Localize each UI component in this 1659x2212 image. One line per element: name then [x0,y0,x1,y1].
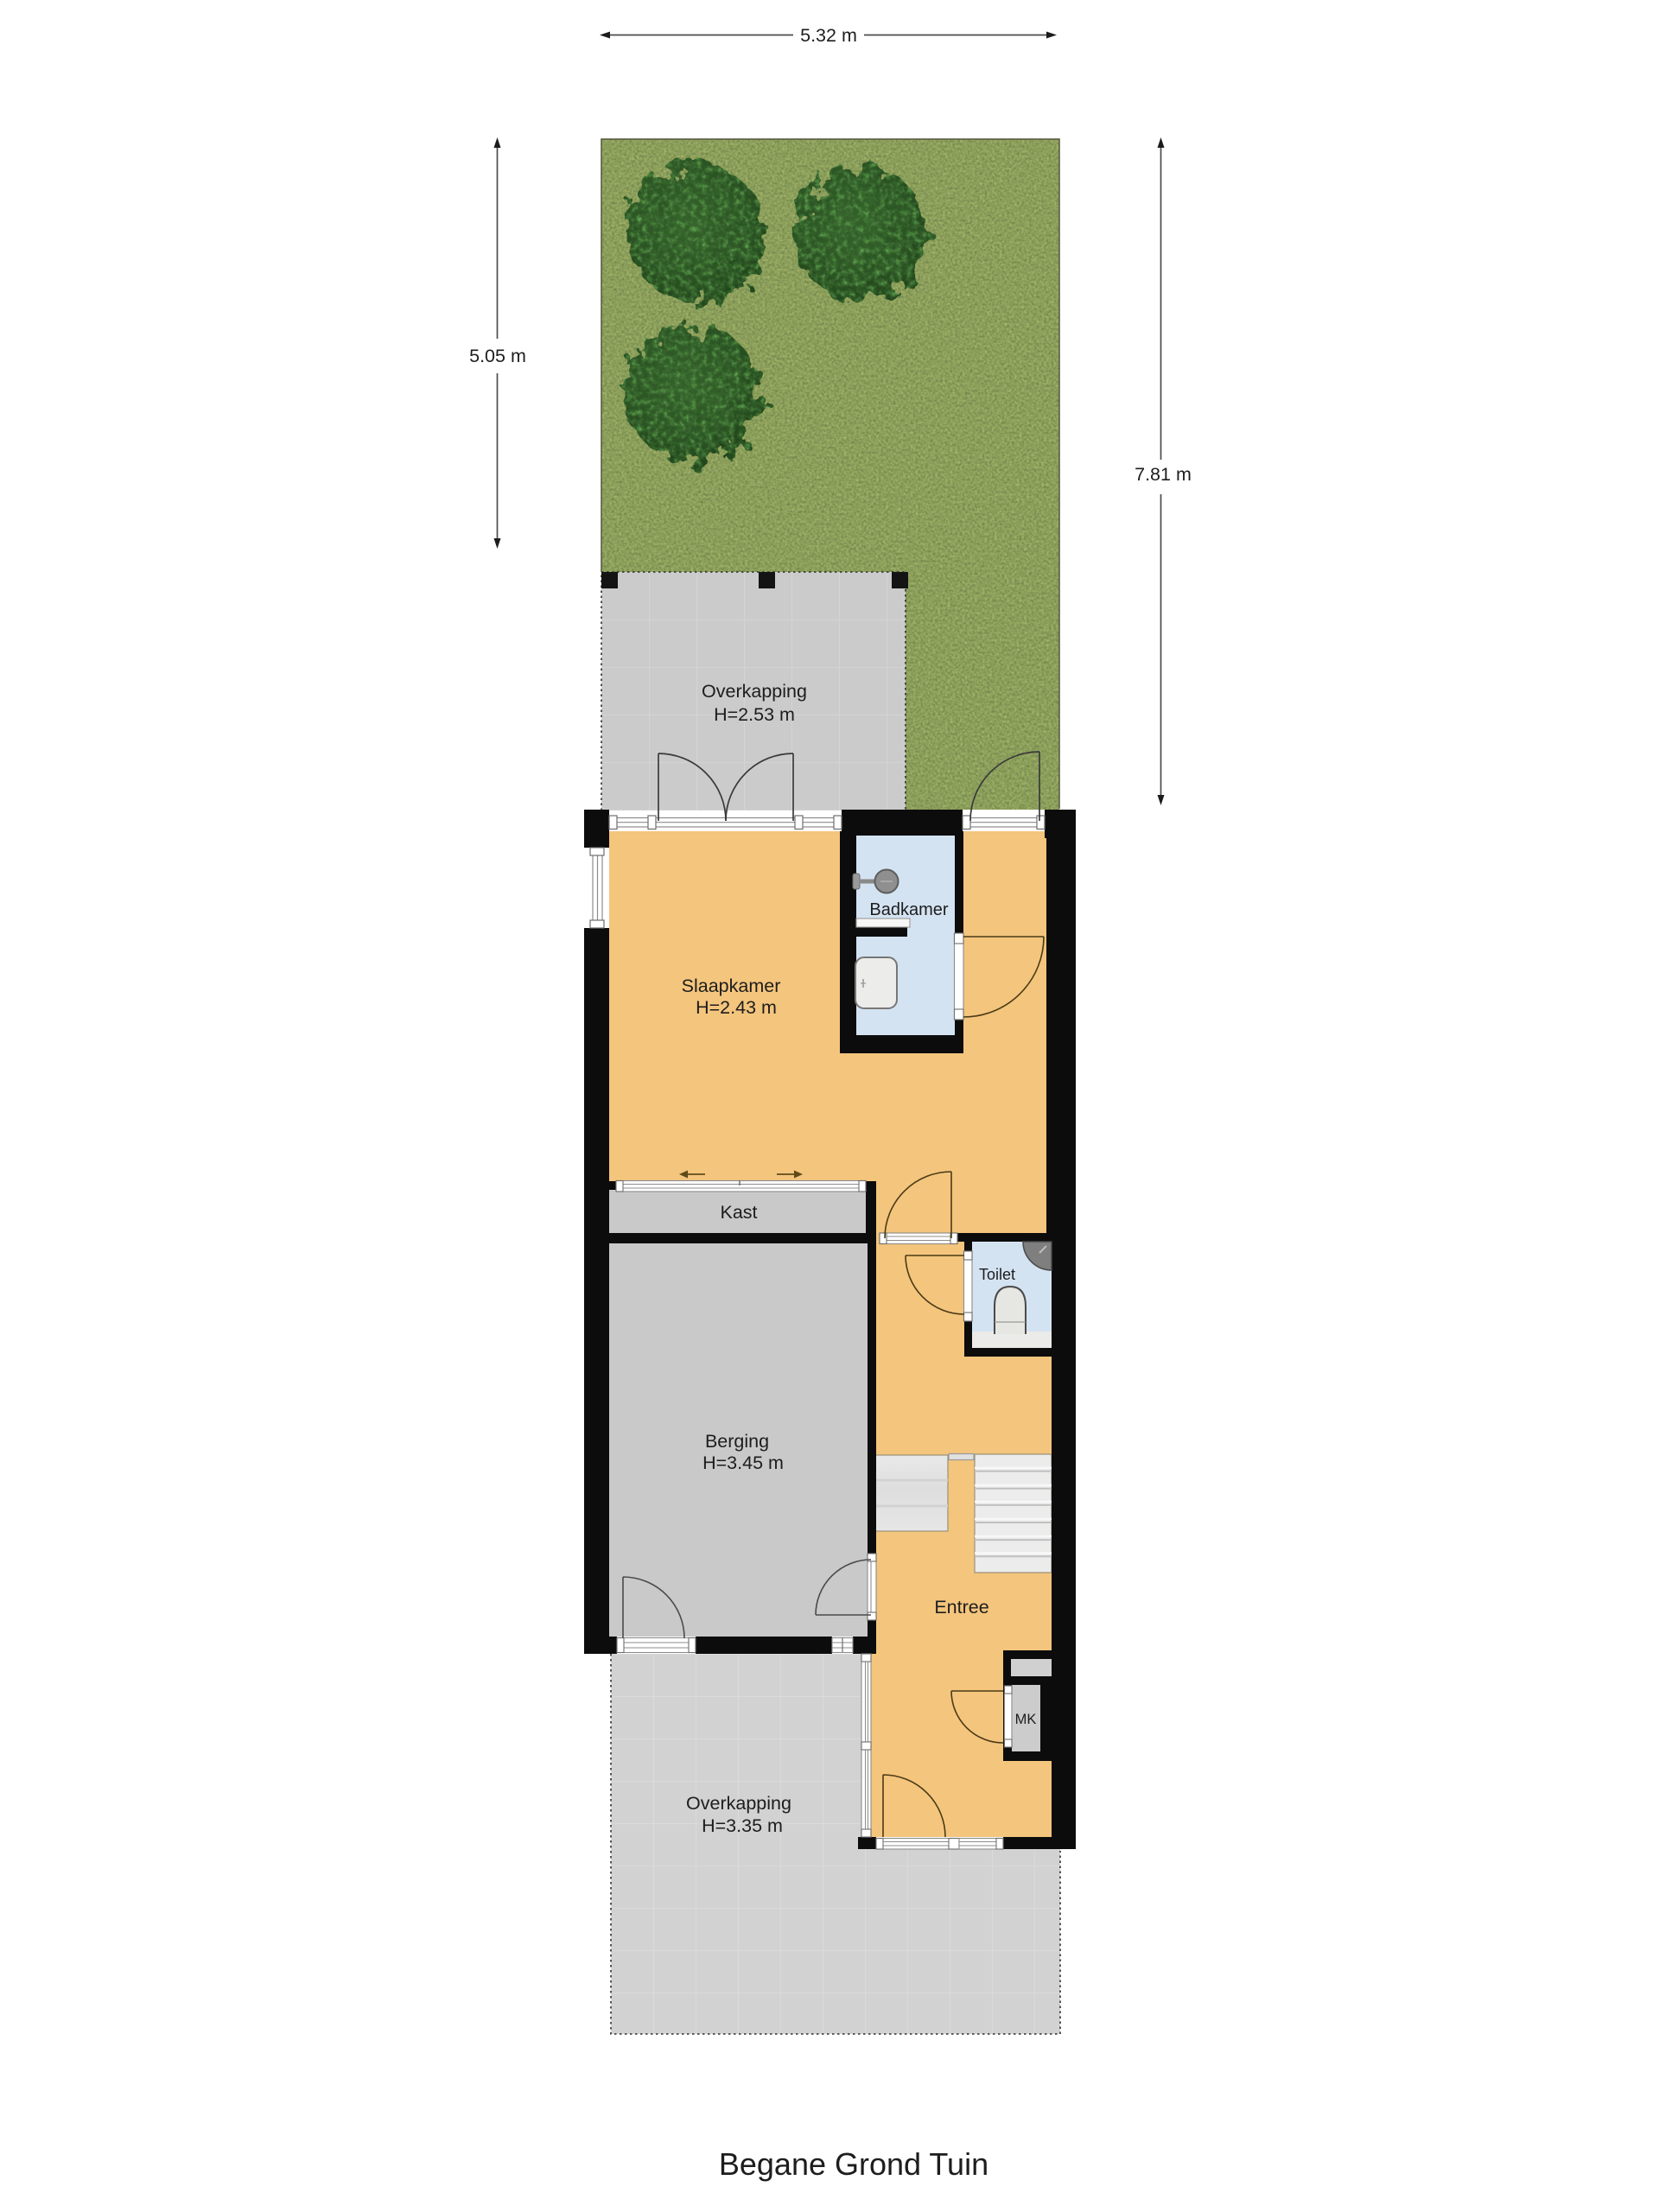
svg-text:7.81 m: 7.81 m [1135,464,1192,485]
svg-text:Entree: Entree [934,1597,988,1618]
svg-text:H=3.35 m: H=3.35 m [702,1815,783,1836]
svg-text:Overkapping: Overkapping [702,681,807,702]
svg-text:Slaapkamer: Slaapkamer [682,976,781,996]
svg-text:5.05 m: 5.05 m [469,346,526,366]
svg-text:5.32 m: 5.32 m [800,25,857,46]
svg-text:MK: MK [1015,1712,1037,1727]
svg-text:Toilet: Toilet [979,1266,1015,1283]
svg-text:Begane Grond Tuin: Begane Grond Tuin [719,2146,988,2182]
svg-text:H=2.53 m: H=2.53 m [714,704,795,725]
svg-text:H=2.43 m: H=2.43 m [696,997,777,1018]
svg-text:Overkapping: Overkapping [686,1793,791,1814]
svg-text:H=3.45 m: H=3.45 m [702,1452,784,1473]
svg-text:Kast: Kast [720,1202,757,1223]
svg-text:Badkamer: Badkamer [869,900,948,919]
svg-text:Berging: Berging [705,1431,769,1452]
